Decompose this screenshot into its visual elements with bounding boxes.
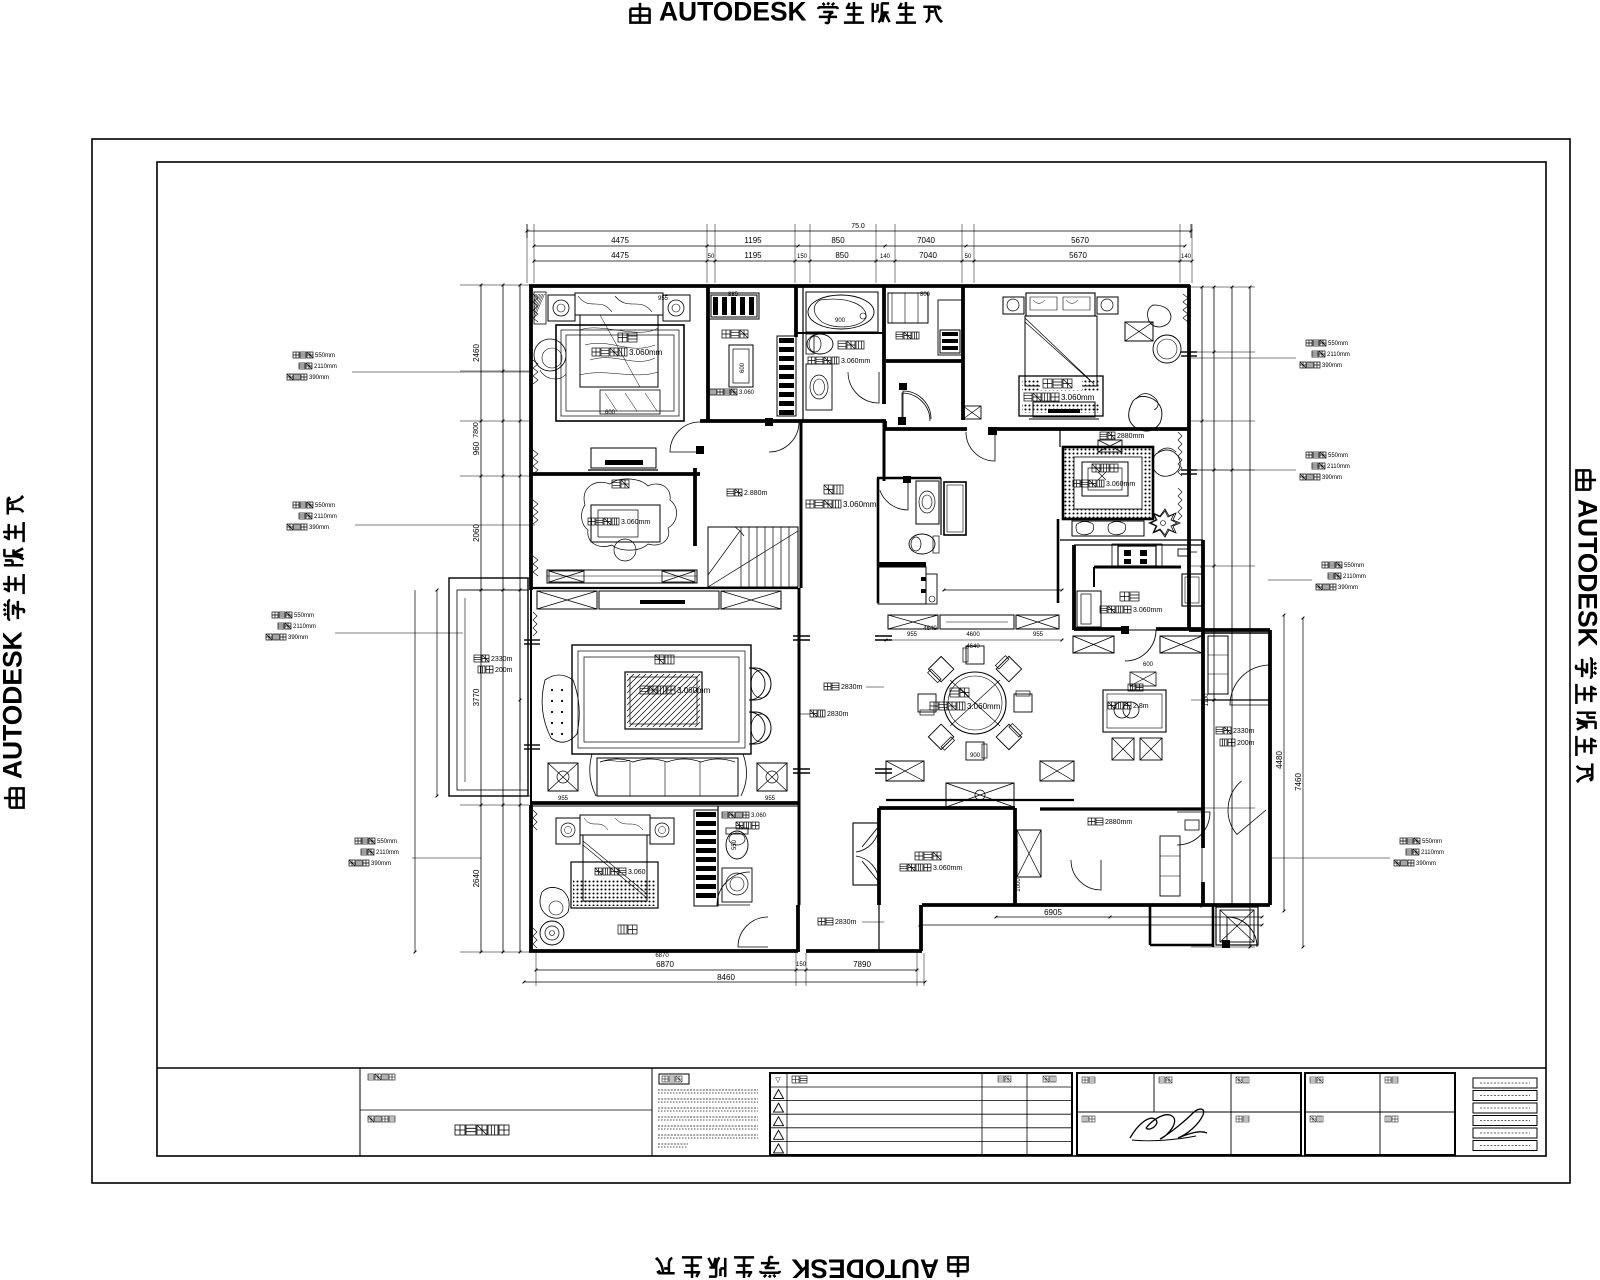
svg-text:5670: 5670: [1071, 236, 1089, 245]
svg-text:3770: 3770: [472, 688, 481, 706]
svg-text:550mm: 550mm: [315, 353, 335, 359]
svg-text:2060: 2060: [472, 524, 481, 542]
svg-text:3.060: 3.060: [751, 813, 767, 819]
svg-text:4475: 4475: [611, 236, 629, 245]
svg-text:140: 140: [1181, 254, 1192, 260]
svg-text:390mm: 390mm: [309, 525, 329, 531]
svg-text:AUTODESK: AUTODESK: [1573, 499, 1600, 647]
svg-text:7040: 7040: [919, 251, 937, 260]
svg-text:AUTODESK: AUTODESK: [659, 0, 807, 27]
svg-text:955: 955: [765, 796, 776, 802]
svg-text:7800: 7800: [473, 422, 480, 438]
svg-text:150: 150: [796, 962, 807, 968]
svg-text:955: 955: [907, 632, 918, 638]
svg-text:4600: 4600: [966, 632, 980, 638]
svg-text:955: 955: [558, 796, 569, 802]
svg-text:5670: 5670: [1069, 251, 1087, 260]
svg-text:8460: 8460: [717, 973, 735, 982]
svg-text:2110mm: 2110mm: [1327, 352, 1350, 358]
svg-text:140: 140: [880, 254, 891, 260]
svg-text:2330m: 2330m: [491, 656, 513, 663]
svg-text:550mm: 550mm: [315, 503, 335, 509]
svg-text:3.060mm: 3.060mm: [629, 348, 663, 357]
svg-text:2110mm: 2110mm: [1327, 464, 1350, 470]
svg-text:600: 600: [1143, 662, 1154, 668]
svg-text:2460: 2460: [472, 344, 481, 362]
svg-text:75.0: 75.0: [851, 223, 865, 230]
svg-text:1195: 1195: [744, 236, 762, 245]
svg-text:▽: ▽: [775, 1077, 781, 1084]
svg-text:850: 850: [835, 251, 849, 260]
svg-text:900: 900: [970, 753, 981, 759]
svg-text:390mm: 390mm: [1322, 475, 1342, 481]
svg-text:390mm: 390mm: [1322, 363, 1342, 369]
svg-text:390mm: 390mm: [1416, 861, 1436, 867]
svg-text:4640: 4640: [966, 644, 980, 650]
svg-text:6905: 6905: [1044, 908, 1062, 917]
svg-text:6870: 6870: [655, 953, 669, 959]
svg-text:1195: 1195: [744, 251, 762, 260]
svg-text:2880mm: 2880mm: [1117, 433, 1144, 440]
svg-text:3.060mm: 3.060mm: [841, 358, 870, 365]
svg-text:390mm: 390mm: [309, 375, 329, 381]
svg-text:390mm: 390mm: [288, 635, 308, 641]
svg-text:550mm: 550mm: [1328, 341, 1348, 347]
svg-text:2.8m: 2.8m: [1133, 703, 1149, 710]
svg-text:200m: 200m: [1237, 740, 1255, 747]
svg-text:600: 600: [740, 362, 746, 373]
svg-text:7040: 7040: [917, 236, 935, 245]
svg-text:3.060: 3.060: [628, 869, 646, 876]
svg-text:1100: 1100: [1204, 693, 1210, 707]
svg-text:150: 150: [797, 254, 808, 260]
svg-text:550mm: 550mm: [1422, 839, 1442, 845]
svg-text:3.060mm: 3.060mm: [1106, 481, 1135, 488]
svg-text:3.060mm: 3.060mm: [1133, 607, 1162, 614]
svg-text:850: 850: [831, 236, 845, 245]
svg-text:2830m: 2830m: [827, 711, 849, 718]
svg-text:3.060mm: 3.060mm: [621, 519, 650, 526]
svg-text:50: 50: [708, 254, 715, 260]
svg-text:7460: 7460: [1294, 773, 1303, 791]
svg-text:955: 955: [1033, 632, 1044, 638]
svg-text:2110mm: 2110mm: [1343, 574, 1366, 580]
svg-text:3.060: 3.060: [739, 390, 755, 396]
svg-text:6870: 6870: [656, 960, 674, 969]
svg-text:2640: 2640: [472, 869, 481, 887]
svg-text:550mm: 550mm: [1344, 563, 1364, 569]
svg-text:550mm: 550mm: [1328, 453, 1348, 459]
svg-text:2110mm: 2110mm: [314, 514, 337, 520]
svg-text:50: 50: [965, 254, 972, 260]
svg-text:550mm: 550mm: [294, 613, 314, 619]
svg-text:4475: 4475: [611, 251, 629, 260]
svg-text:390mm: 390mm: [1338, 585, 1358, 591]
svg-text:AUTODESK: AUTODESK: [0, 631, 28, 779]
svg-text:2110mm: 2110mm: [293, 624, 316, 630]
svg-text:200m: 200m: [495, 667, 513, 674]
svg-text:390mm: 390mm: [371, 861, 391, 867]
svg-text:2830m: 2830m: [835, 919, 857, 926]
svg-text:3.060mm: 3.060mm: [967, 702, 1001, 711]
svg-text:550mm: 550mm: [377, 839, 397, 845]
svg-text:4480: 4480: [1275, 751, 1284, 769]
svg-text:900: 900: [835, 318, 846, 324]
svg-text:3.060mm: 3.060mm: [1061, 393, 1095, 402]
svg-text:2830m: 2830m: [841, 684, 863, 691]
svg-text:3.060mm: 3.060mm: [843, 500, 877, 509]
svg-text:960: 960: [472, 441, 481, 455]
svg-text:2330m: 2330m: [1233, 728, 1255, 735]
svg-text:3.060mm: 3.060mm: [933, 865, 962, 872]
svg-text:AUTODESK: AUTODESK: [791, 1254, 939, 1280]
svg-text:2.880m: 2.880m: [744, 490, 768, 497]
svg-text:2110mm: 2110mm: [314, 364, 337, 370]
svg-text:1000: 1000: [1016, 878, 1022, 892]
svg-text:2880mm: 2880mm: [1105, 819, 1132, 826]
svg-text:2110mm: 2110mm: [376, 850, 399, 856]
svg-text:3.060mm: 3.060mm: [677, 686, 711, 695]
svg-text:7890: 7890: [853, 960, 871, 969]
svg-text:2110mm: 2110mm: [1421, 850, 1444, 856]
